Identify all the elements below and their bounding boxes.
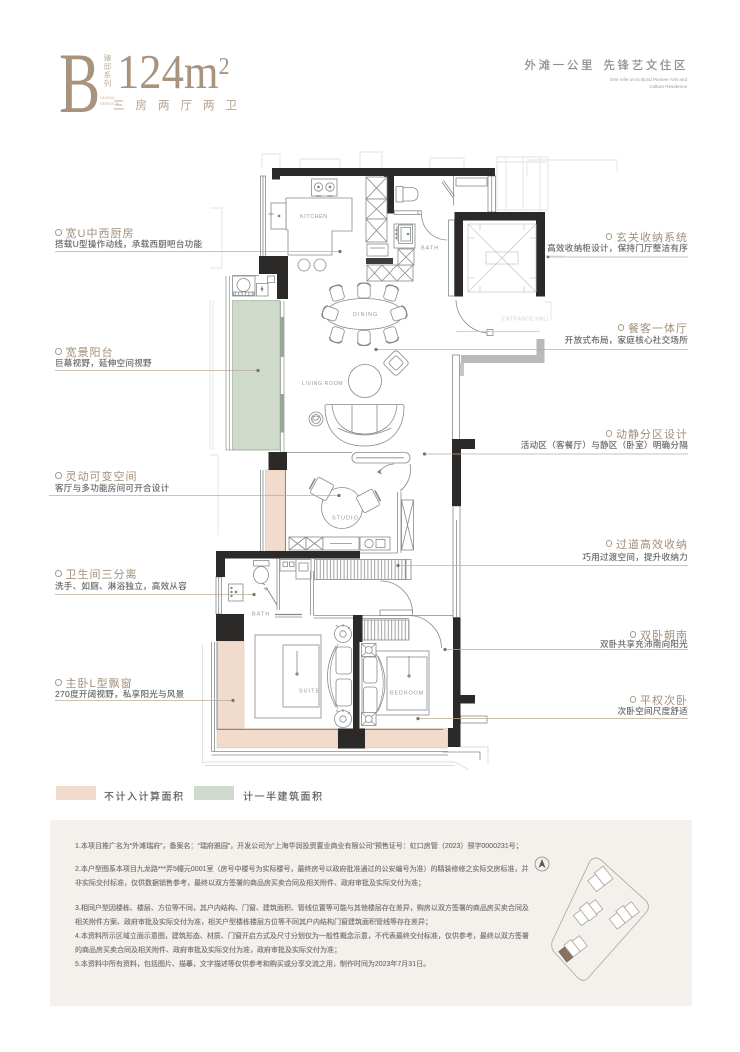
svg-text:ENTRANCE HALL: ENTRANCE HALL (502, 317, 550, 323)
svg-text:BATH: BATH (421, 246, 439, 252)
svg-text:STUDIO: STUDIO (332, 516, 359, 522)
svg-text:KITCHEN: KITCHEN (300, 214, 328, 220)
svg-text:LIVING ROOM: LIVING ROOM (302, 381, 343, 387)
svg-text:SUITE: SUITE (299, 689, 320, 695)
svg-text:DINING: DINING (353, 312, 378, 318)
svg-text:BATH: BATH (252, 612, 270, 618)
svg-text:BEDROOM: BEDROOM (390, 691, 424, 697)
